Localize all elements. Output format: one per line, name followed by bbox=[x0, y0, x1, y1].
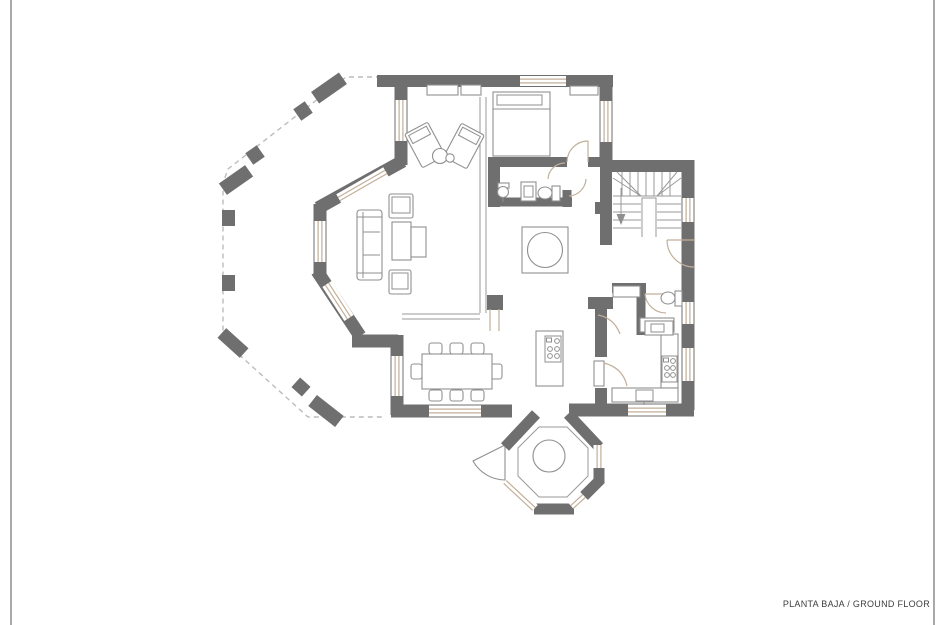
floor-plan-drawing bbox=[0, 0, 945, 625]
window-seat bbox=[461, 85, 481, 95]
plan-caption: PLANTA BAJA / GROUND FLOOR bbox=[783, 599, 930, 609]
side-table bbox=[433, 149, 448, 164]
staircase bbox=[613, 172, 681, 237]
door-arc bbox=[567, 141, 588, 162]
terrace-pillar bbox=[218, 73, 347, 427]
dining-furniture bbox=[411, 331, 563, 401]
window-seat bbox=[427, 85, 458, 95]
tower-round-table bbox=[533, 440, 565, 472]
door-arc bbox=[473, 445, 505, 480]
cabinet bbox=[521, 182, 536, 201]
armchair bbox=[389, 270, 411, 294]
door-arc bbox=[569, 179, 586, 196]
toilet bbox=[661, 291, 682, 306]
side-table bbox=[446, 154, 454, 162]
vanity-sink bbox=[645, 321, 673, 335]
dining-table bbox=[422, 354, 492, 389]
hall-furniture bbox=[522, 227, 568, 273]
door-arc bbox=[594, 361, 627, 386]
cabinet bbox=[613, 286, 640, 297]
window bbox=[505, 482, 534, 509]
page: PLANTA BAJA / GROUND FLOOR bbox=[0, 0, 945, 625]
living-room-furniture bbox=[357, 122, 484, 294]
bed bbox=[493, 92, 550, 156]
stair-direction-arrow bbox=[617, 188, 626, 225]
kitchen-island bbox=[536, 331, 563, 386]
tower-room bbox=[505, 414, 601, 509]
armchair bbox=[389, 194, 413, 218]
bedroom-furniture bbox=[493, 92, 550, 156]
hall-round-table bbox=[528, 233, 563, 268]
coffee-table bbox=[392, 222, 411, 260]
window bbox=[572, 496, 584, 507]
window-seat bbox=[570, 86, 598, 95]
wc-fixtures bbox=[613, 286, 682, 335]
sofa bbox=[357, 210, 382, 280]
coffee-table bbox=[411, 227, 426, 257]
